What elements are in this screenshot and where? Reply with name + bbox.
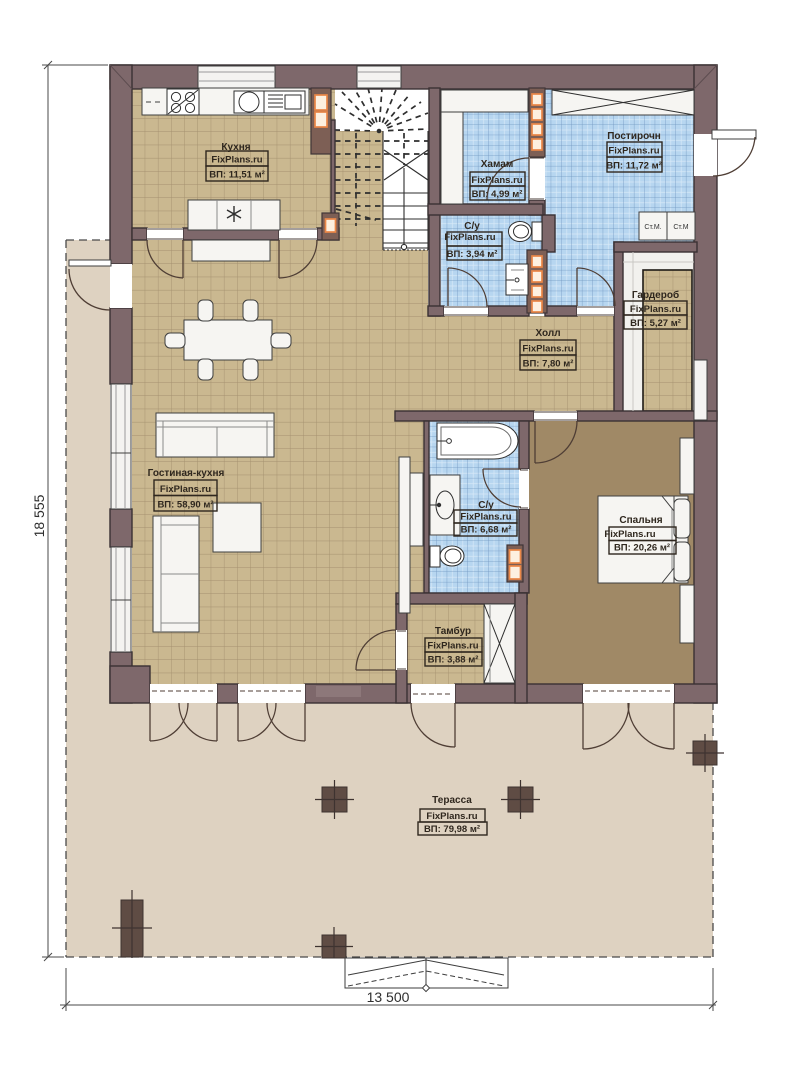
- svg-text:ВП: 3,88 м²: ВП: 3,88 м²: [428, 655, 479, 666]
- svg-text:Спальня: Спальня: [619, 515, 662, 526]
- svg-text:Ст.М: Ст.М: [673, 224, 688, 231]
- svg-text:ВП: 79,98 м²: ВП: 79,98 м²: [424, 824, 480, 835]
- svg-text:FixPlans.ru: FixPlans.ru: [160, 484, 211, 495]
- svg-text:Хамам: Хамам: [481, 159, 513, 170]
- svg-text:FixPlans.ru: FixPlans.ru: [630, 304, 681, 315]
- svg-text:ВП: 6,68 м²: ВП: 6,68 м²: [461, 525, 512, 536]
- svg-text:Постирочн: Постирочн: [607, 131, 661, 142]
- svg-text:FixPlans.ru: FixPlans.ru: [608, 146, 659, 157]
- svg-text:ВП: 11,72 м²: ВП: 11,72 м²: [606, 161, 662, 172]
- svg-text:FixPlans.ru: FixPlans.ru: [471, 175, 522, 186]
- svg-text:Терасса: Терасса: [432, 795, 472, 806]
- svg-text:ВП: 5,27 м²: ВП: 5,27 м²: [630, 318, 681, 329]
- svg-text:ВП: 11,51 м²: ВП: 11,51 м²: [209, 170, 265, 181]
- svg-text:ВП: 20,26 м²: ВП: 20,26 м²: [614, 543, 670, 554]
- svg-text:Гардероб: Гардероб: [632, 289, 679, 301]
- svg-text:FixPlans.ru: FixPlans.ru: [427, 641, 478, 652]
- svg-text:ВП: 7,80 м²: ВП: 7,80 м²: [523, 359, 574, 370]
- svg-text:FixPlans.ru: FixPlans.ru: [426, 811, 477, 822]
- svg-text:ВП: 58,90 м²: ВП: 58,90 м²: [157, 500, 213, 511]
- svg-text:С/у: С/у: [464, 221, 480, 232]
- svg-text:Холл: Холл: [535, 328, 560, 339]
- svg-text:18 555: 18 555: [31, 494, 47, 537]
- svg-text:ВП: 3,94 м²: ВП: 3,94 м²: [447, 249, 498, 260]
- svg-text:FixPlans.ru: FixPlans.ru: [211, 155, 262, 166]
- svg-text:FixPlans.ru: FixPlans.ru: [522, 344, 573, 355]
- svg-text:Гостиная-кухня: Гостиная-кухня: [148, 468, 225, 479]
- svg-text:FixPlans.ru: FixPlans.ru: [444, 232, 495, 243]
- svg-text:13 500: 13 500: [367, 989, 410, 1005]
- svg-text:Ст.М.: Ст.М.: [644, 224, 661, 231]
- svg-text:FixPlans.ru: FixPlans.ru: [604, 529, 655, 540]
- svg-text:Тамбур: Тамбур: [435, 625, 471, 637]
- svg-text:ВП: 4,99 м²: ВП: 4,99 м²: [472, 189, 523, 200]
- svg-text:FixPlans.ru: FixPlans.ru: [460, 512, 511, 523]
